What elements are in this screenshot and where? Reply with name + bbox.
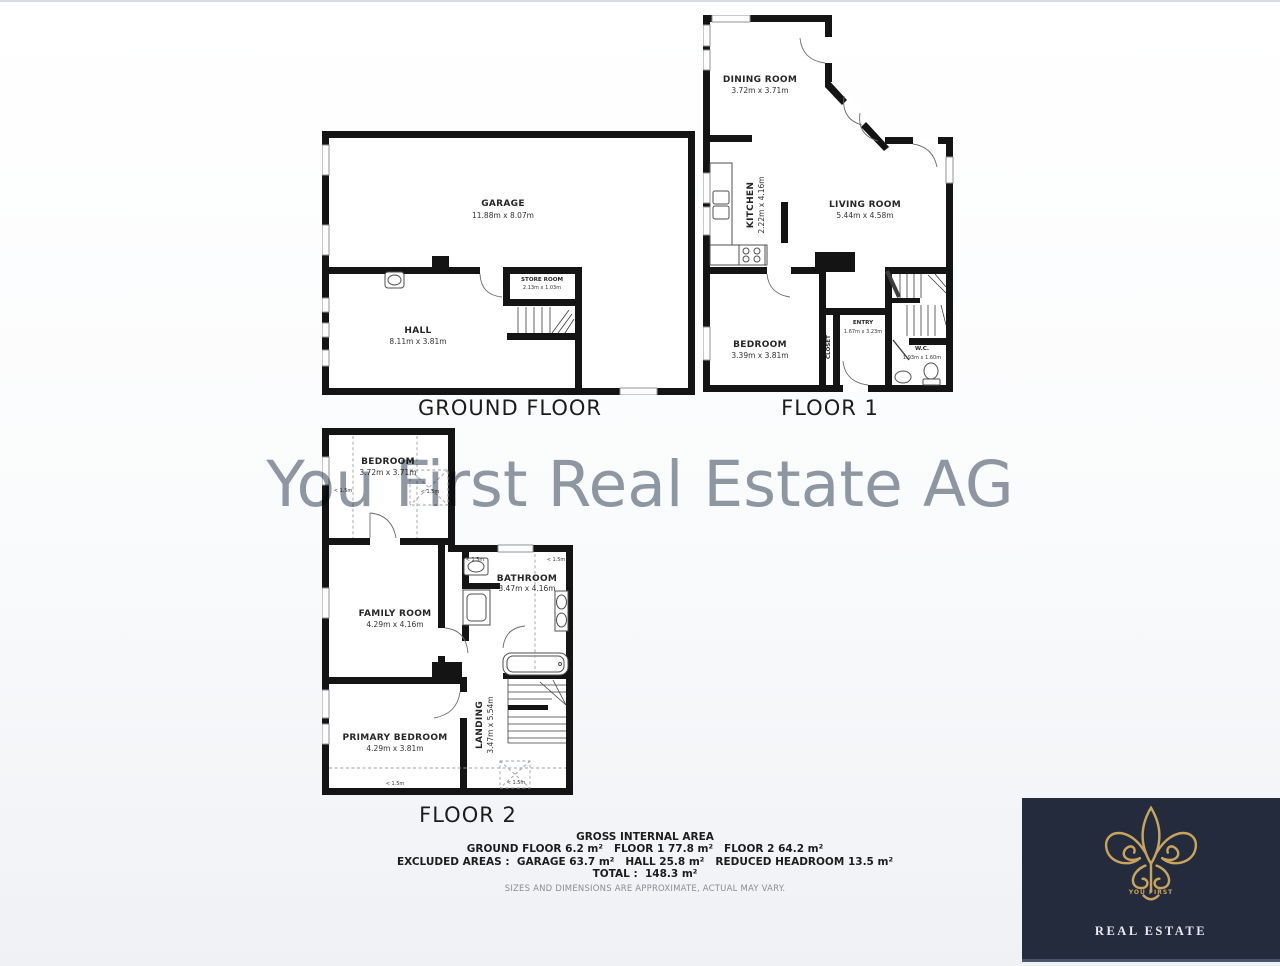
room-dims-bathroom: 3.47m x 4.16m [498, 584, 555, 593]
room-label-closet: CLOSET [826, 335, 832, 359]
fleur-de-lis-icon [1095, 802, 1207, 920]
summary-floor-areas: GROUND FLOOR 6.2 m² FLOOR 1 77.8 m² FLOO… [245, 843, 1045, 855]
room-label-dining: DINING ROOM [723, 75, 797, 85]
headroom-label: < 1.5m [421, 489, 440, 495]
room-label-kitchen: KITCHEN [746, 182, 756, 228]
headroom-label: < 1.5m [386, 781, 405, 787]
room-dims-entry: 1.67m x 3.23m [844, 329, 882, 335]
room-dims-hall: 8.11m x 3.81m [389, 337, 446, 346]
room-label-living: LIVING ROOM [829, 200, 901, 210]
floor2-title: FLOOR 2 [368, 803, 568, 827]
headroom-label: < 1.5m [507, 780, 526, 786]
room-label-landing: LANDING [475, 701, 485, 749]
room-label-garage: GARAGE [481, 199, 525, 209]
room-dims-living: 5.44m x 4.58m [836, 211, 893, 220]
room-dims-garage: 11.88m x 8.07m [472, 211, 534, 220]
ground-floor-plan: GARAGE 11.88m x 8.07m HALL 8.11m x 3.81m… [322, 131, 695, 395]
floor1-title: FLOOR 1 [730, 396, 930, 420]
headroom-label: < 1.5m [466, 557, 485, 563]
ground-floor-outline [322, 131, 695, 395]
summary-total: TOTAL : 148.3 m² [245, 868, 1045, 880]
room-dims-dining: 3.72m x 3.71m [731, 86, 788, 95]
room-label-bathroom: BATHROOM [497, 574, 557, 584]
summary-disclaimer: SIZES AND DIMENSIONS ARE APPROXIMATE, AC… [245, 884, 1045, 894]
room-label-wc: W.C. [915, 346, 929, 352]
agency-logo: YOU FIRST REAL ESTATE [1022, 798, 1280, 962]
room-label-bedroom2: BEDROOM [361, 457, 415, 467]
room-dims-bedroom1: 3.39m x 3.81m [731, 351, 788, 360]
hall-sink-icon [385, 272, 404, 288]
page-top-divider [0, 0, 1280, 2]
watermark-text: You First Real Estate AG [0, 444, 1280, 526]
media-unit-icon [815, 252, 855, 272]
area-summary: GROSS INTERNAL AREA GROUND FLOOR 6.2 m² … [245, 831, 1045, 894]
room-dims-store: 2.13m x 1.03m [523, 285, 561, 291]
room-dims-family: 4.29m x 4.16m [366, 620, 423, 629]
floor2-plan: BEDROOM 3.72m x 3.71m < 1.5m < 1.5m FAMI… [322, 428, 573, 798]
summary-excluded-areas: EXCLUDED AREAS : GARAGE 63.7 m² HALL 25.… [245, 856, 1045, 868]
room-label-primary: PRIMARY BEDROOM [342, 733, 447, 743]
summary-title: GROSS INTERNAL AREA [245, 831, 1045, 843]
room-dims-landing: 3.47m x 5.54m [486, 696, 495, 753]
logo-brand-bottom: REAL ESTATE [1022, 924, 1280, 939]
room-dims-bedroom2: 3.72m x 3.71m [359, 468, 416, 477]
room-label-store: STORE ROOM [521, 277, 563, 283]
room-dims-kitchen: 2.22m x 4.16m [757, 176, 766, 233]
room-dims-wc: 1.93m x 1.60m [903, 355, 941, 361]
room-label-bedroom1: BEDROOM [733, 340, 787, 350]
floor1-plan: DINING ROOM 3.72m x 3.71m KITCHEN 2.22m … [703, 15, 961, 395]
room-label-entry: ENTRY [853, 320, 874, 326]
ground-floor-title: GROUND FLOOR [410, 396, 610, 420]
room-label-hall: HALL [404, 326, 431, 336]
headroom-label: < 1.5m [547, 557, 566, 563]
room-label-family: FAMILY ROOM [359, 609, 432, 619]
headroom-label: < 1.5m [334, 488, 353, 494]
logo-brand-top: YOU FIRST [1022, 889, 1280, 896]
room-dims-primary: 4.29m x 3.81m [366, 744, 423, 753]
